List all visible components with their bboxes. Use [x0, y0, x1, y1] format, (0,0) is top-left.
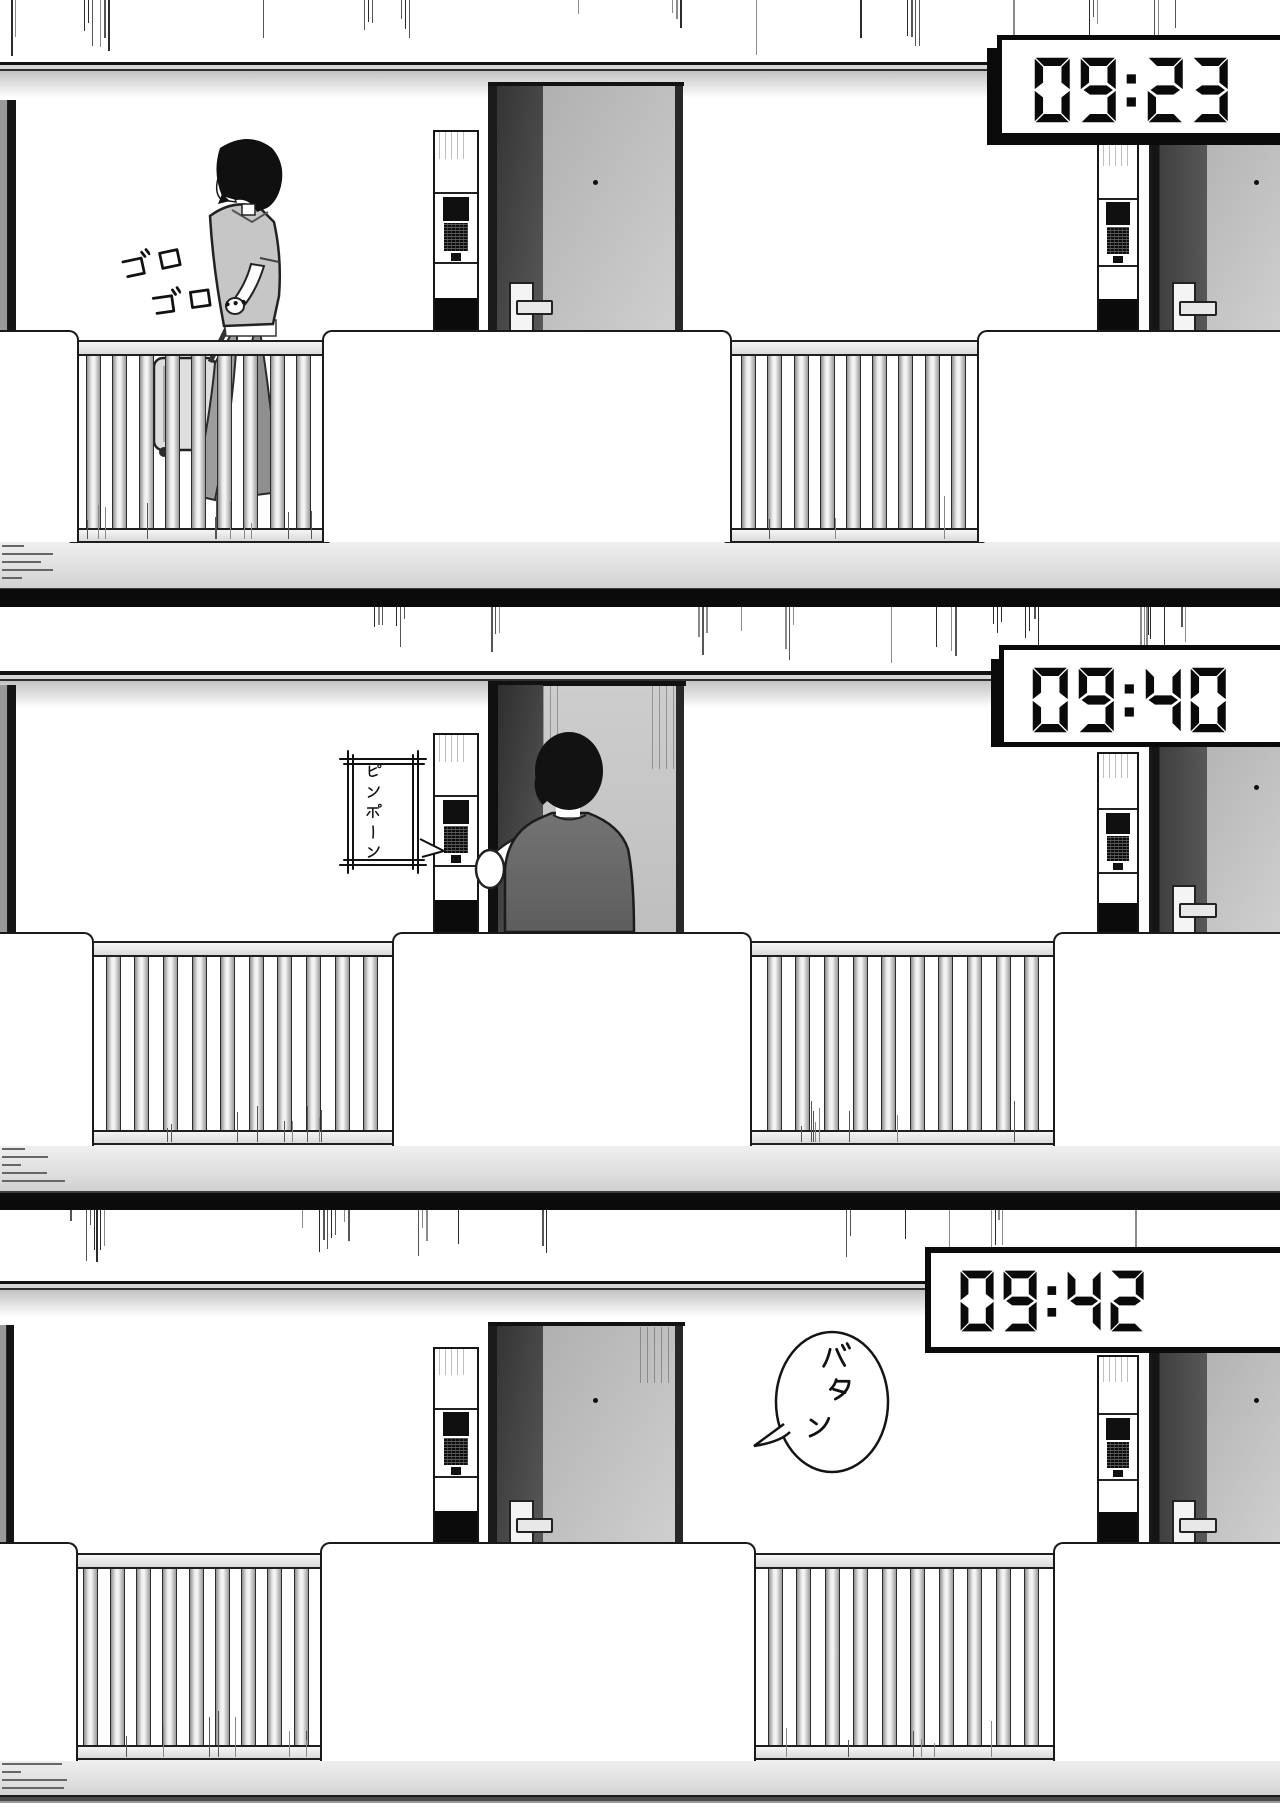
speed-line: [998, 1210, 1000, 1220]
speed-line: [1150, 607, 1151, 639]
speed-line: [860, 0, 862, 38]
sfx-glyph-ロ: [182, 280, 220, 317]
sfx-glyph-ン: [364, 843, 383, 861]
clock-digit: [1143, 665, 1184, 735]
speed-line: [458, 1210, 459, 1244]
speed-line: [785, 607, 787, 649]
speed-line: [94, 1210, 95, 1250]
speed-line: [331, 1210, 332, 1238]
speed-line: [913, 1731, 914, 1757]
speed-line: [327, 1210, 328, 1249]
speed-line: [919, 0, 920, 46]
bubble-tail: [754, 1424, 790, 1446]
speed-line: [364, 0, 365, 30]
speed-line: [936, 607, 937, 647]
speed-line: [815, 1122, 816, 1142]
speed-line: [2, 1156, 48, 1158]
speed-line: [1175, 0, 1176, 28]
parapet-wall: [392, 932, 752, 1146]
panel-1: ゴロゴロ… 09:23: [0, 0, 1280, 607]
speed-line: [321, 1110, 322, 1142]
clock-display: [1030, 665, 1229, 735]
sfx-glyph-バ: [818, 1342, 852, 1374]
speed-line: [216, 495, 217, 539]
speed-line: [323, 1210, 325, 1240]
sfx-glyph-ポ: [364, 803, 383, 821]
speed-line: [2, 569, 53, 571]
clock-digit: [1108, 1268, 1146, 1334]
speed-line: [991, 1721, 992, 1757]
speed-line: [100, 1210, 101, 1250]
speed-line: [1144, 607, 1145, 645]
speed-line: [90, 1210, 91, 1225]
speed-line: [1146, 607, 1148, 649]
speed-line: [98, 505, 99, 539]
speed-line: [348, 1210, 350, 1241]
speed-line: [915, 0, 916, 46]
speed-line: [1097, 0, 1098, 24]
speed-line: [401, 0, 402, 19]
speed-line: [756, 0, 757, 55]
speed-line: [1093, 0, 1094, 17]
speed-line: [698, 607, 700, 637]
speed-line: [993, 607, 994, 624]
sfx-doorbell-sign: ピンポーン: [336, 747, 452, 881]
clock-digit: [1001, 1268, 1039, 1334]
speed-line: [934, 1743, 935, 1757]
speed-line: [706, 607, 708, 633]
speed-line: [813, 1111, 814, 1142]
clock-display: [1032, 55, 1231, 125]
speed-line: [405, 0, 406, 29]
speed-line: [2, 1172, 47, 1174]
speed-line: [92, 0, 93, 46]
speed-line: [897, 1115, 898, 1142]
speed-line: [542, 1210, 544, 1246]
speed-line: [319, 1210, 320, 1252]
speed-line: [263, 0, 264, 38]
speed-line: [769, 519, 770, 539]
speed-line: [2, 1180, 65, 1182]
page-bottom-line: [0, 1801, 1280, 1803]
speed-line: [911, 0, 913, 20]
speed-line: [302, 1210, 303, 1228]
speed-line: [382, 607, 383, 625]
speed-line: [793, 607, 794, 625]
speed-line: [372, 0, 373, 23]
panel-3: バタン 09:42: [0, 1210, 1280, 1808]
speed-line: [292, 1121, 293, 1142]
speed-line: [426, 1210, 428, 1241]
sfx-glyph-…: [218, 275, 256, 312]
speed-line: [87, 520, 88, 539]
speed-line: [850, 1210, 851, 1236]
sign-tail: [420, 839, 444, 857]
speed-line: [1029, 607, 1030, 631]
speed-line: [126, 1736, 127, 1757]
speed-line: [257, 1106, 258, 1142]
manga-page: ゴロゴロ… 09:23: [0, 0, 1280, 1808]
speed-line: [378, 607, 380, 625]
speed-line: [951, 607, 952, 651]
speed-line: [907, 0, 908, 36]
speed-line: [171, 1124, 172, 1142]
speed-line: [84, 0, 85, 31]
speed-line: [218, 1711, 219, 1757]
speed-line: [741, 607, 742, 631]
speed-line: [104, 0, 106, 38]
speed-line: [2, 561, 41, 563]
speed-line: [167, 1128, 168, 1142]
clock-colon: [1121, 665, 1138, 735]
speed-line: [789, 607, 790, 660]
speed-line: [676, 0, 678, 19]
clock-display: [958, 1268, 1146, 1334]
speed-line: [15, 0, 16, 37]
speed-line: [244, 523, 245, 539]
speed-line: [307, 1106, 308, 1142]
speed-line: [1034, 607, 1036, 619]
sfx-glyph-ゴ: [146, 285, 184, 322]
parapet-wall: [1053, 1542, 1280, 1761]
speed-line: [289, 1731, 290, 1757]
sfx-glyph-ゴ: [115, 247, 155, 286]
clock-digit: [1145, 55, 1186, 125]
speed-line: [702, 607, 704, 655]
sfx-glyph-ロ: [151, 239, 191, 278]
clock-digit: [1188, 665, 1229, 735]
clock-digit: [1076, 665, 1117, 735]
sfx-glyph-ピ: [364, 763, 383, 781]
speed-line: [2, 1164, 21, 1166]
speed-line: [680, 0, 682, 28]
speed-line: [163, 1725, 164, 1757]
speed-line: [237, 1112, 238, 1142]
speed-line: [2, 1763, 62, 1765]
speed-line: [335, 1210, 336, 1235]
speed-line: [1001, 607, 1002, 622]
parapet-wall: [320, 1542, 756, 1761]
panel-separator: [0, 589, 1280, 607]
parapet-wall: [977, 330, 1280, 542]
speed-line: [835, 518, 836, 539]
speed-line: [404, 607, 405, 619]
speed-line: [284, 1121, 285, 1142]
speed-line: [672, 0, 673, 13]
speed-line: [396, 607, 397, 626]
speed-line: [108, 0, 110, 51]
speed-line: [400, 607, 401, 647]
speed-line: [991, 1210, 992, 1247]
speed-line: [846, 1210, 847, 1257]
speed-line: [2, 1779, 67, 1781]
speed-line: [105, 507, 106, 539]
speed-line: [11, 0, 13, 56]
speed-line: [288, 512, 289, 539]
speed-line: [1185, 607, 1186, 642]
speed-line: [235, 1717, 236, 1757]
speed-line: [2, 577, 22, 579]
clock-digit: [958, 1268, 996, 1334]
speech-bubble: バタン: [740, 1320, 900, 1494]
speed-line: [96, 1210, 98, 1262]
speed-line: [1181, 607, 1183, 627]
speed-line: [546, 1210, 547, 1253]
speed-line: [70, 1210, 72, 1221]
speed-line: [801, 1126, 802, 1142]
sfx-glyph-ン: [364, 783, 383, 801]
parapet-wall: [0, 330, 79, 542]
speed-line: [2, 1787, 64, 1789]
clock-digit: [1078, 55, 1119, 125]
speed-line: [2, 553, 53, 555]
speed-line: [944, 496, 945, 539]
parapet-wall: [0, 932, 94, 1146]
speed-line: [995, 1210, 996, 1245]
clock-colon: [1044, 1268, 1060, 1334]
speed-line: [409, 0, 410, 38]
speed-line: [344, 1210, 345, 1222]
sfx-glyph-タ: [824, 1374, 858, 1406]
speed-line: [786, 1728, 787, 1757]
clock-colon: [1123, 55, 1140, 125]
speed-line: [811, 1101, 812, 1142]
speed-line: [100, 0, 101, 47]
speed-line: [997, 607, 998, 633]
speed-line: [422, 1210, 423, 1228]
parapet-wall: [0, 1542, 78, 1761]
speed-line: [819, 1108, 820, 1142]
speed-line: [2, 1148, 25, 1150]
panel-2: ピンポーン 09:40: [0, 607, 1280, 1210]
speed-line: [311, 511, 312, 539]
parapet-wall: [1053, 932, 1280, 1146]
speed-line: [905, 1210, 906, 1239]
parapet-wall: [322, 330, 732, 542]
speed-line: [88, 0, 89, 23]
speed-line: [104, 1210, 105, 1246]
speed-line: [921, 1739, 922, 1757]
speed-line: [1014, 1101, 1015, 1142]
clock-digit: [1030, 665, 1071, 735]
speed-line: [1002, 1210, 1003, 1245]
clock-digit: [1032, 55, 1073, 125]
speed-line: [891, 607, 892, 663]
speed-line: [849, 1111, 850, 1142]
speed-line: [147, 503, 148, 539]
speed-line: [491, 607, 493, 652]
speed-line: [578, 0, 579, 14]
speed-line: [306, 1740, 307, 1757]
sfx-glyph-ン: [802, 1411, 836, 1443]
speed-line: [230, 501, 231, 539]
sfx-glyph-ー: [364, 823, 383, 841]
speed-line: [955, 607, 957, 656]
speed-line: [2, 545, 24, 547]
clock-digit: [1190, 55, 1231, 125]
speed-line: [2, 1771, 21, 1773]
speed-line: [86, 1210, 87, 1261]
clock-digit: [1065, 1268, 1103, 1334]
speed-line: [499, 607, 500, 633]
speed-line: [1025, 607, 1026, 638]
panel-separator: [0, 1193, 1280, 1210]
speed-line: [209, 1717, 210, 1757]
speed-line: [418, 1210, 419, 1256]
speed-line: [374, 607, 375, 627]
speed-line: [495, 607, 496, 634]
speed-line: [251, 523, 252, 539]
speed-line: [848, 1740, 849, 1757]
speed-line: [368, 0, 369, 22]
